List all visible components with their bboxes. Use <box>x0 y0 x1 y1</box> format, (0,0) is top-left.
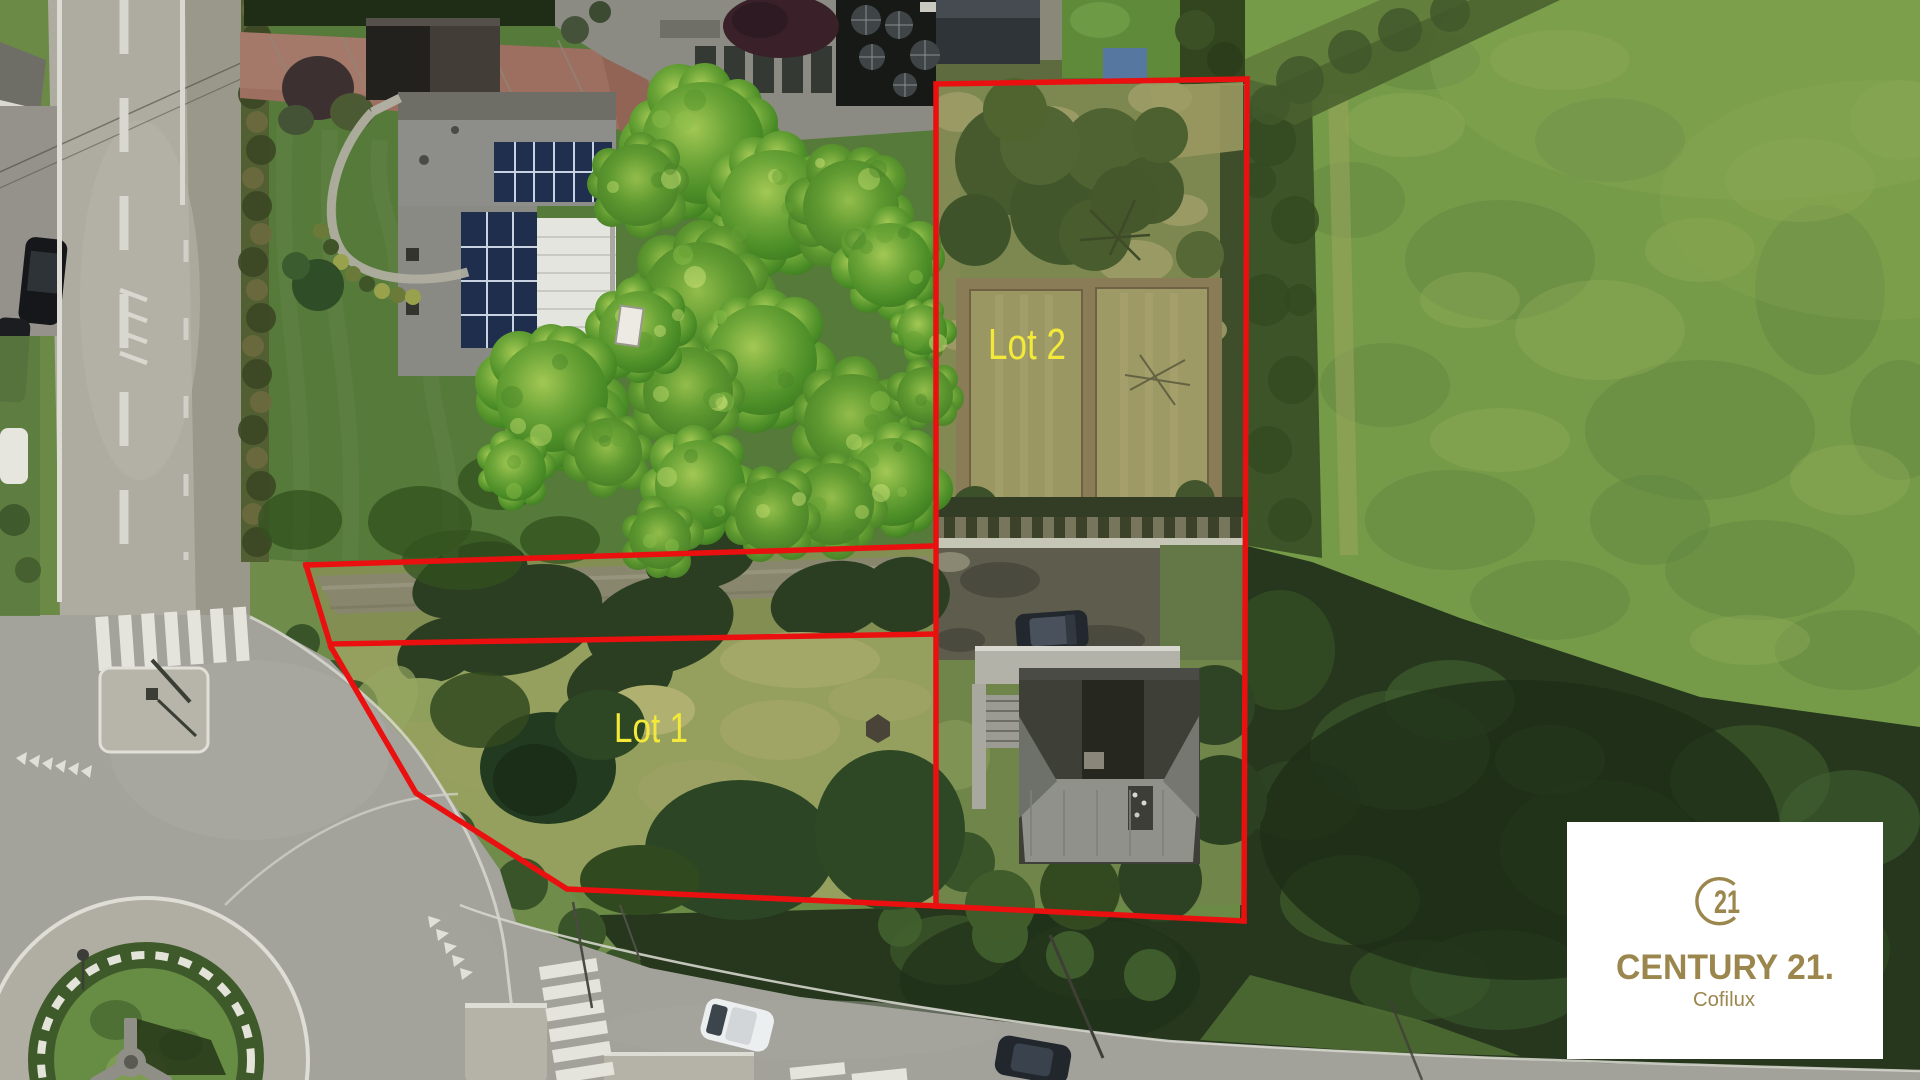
svg-text:CENTURY 21.: CENTURY 21. <box>1616 948 1834 987</box>
svg-text:Lot 1: Lot 1 <box>614 704 688 751</box>
svg-text:Lot 2: Lot 2 <box>988 320 1066 369</box>
svg-text:Cofilux: Cofilux <box>1693 989 1755 1011</box>
svg-text:21: 21 <box>1714 884 1740 920</box>
